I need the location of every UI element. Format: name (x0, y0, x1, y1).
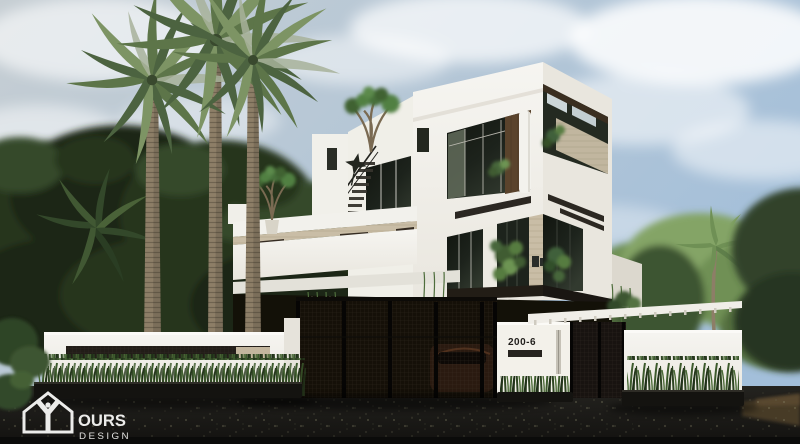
stair-tower-window (327, 148, 337, 170)
side-fence (570, 322, 626, 398)
stair-tower (312, 134, 348, 226)
logo-text-sub: DESIGN (79, 431, 131, 441)
street-name-bar (508, 350, 542, 357)
logo-text-main: OURS (78, 411, 126, 430)
render-canvas: 200-6 (0, 0, 800, 444)
driveway-gate (296, 297, 497, 398)
small-window-upper (417, 128, 429, 152)
tree-pot (265, 220, 279, 234)
travertine-pier (529, 214, 543, 293)
house-number: 200-6 (508, 337, 536, 348)
architectural-render: 200-6 (0, 0, 800, 444)
